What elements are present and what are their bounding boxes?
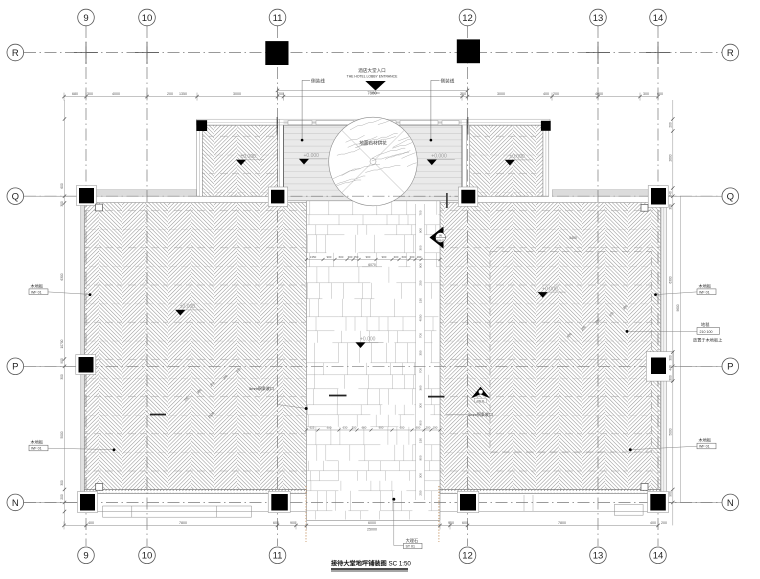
svg-text:5000: 5000: [60, 431, 64, 438]
svg-text:12: 12: [462, 551, 473, 562]
svg-text:440: 440: [669, 365, 673, 371]
svg-text:200: 200: [669, 122, 673, 128]
svg-text:4000: 4000: [595, 92, 603, 96]
svg-text:7800: 7800: [558, 521, 566, 525]
svg-text:900: 900: [290, 521, 296, 525]
svg-text:N: N: [12, 498, 19, 509]
svg-text:P: P: [727, 362, 733, 373]
svg-text:WF 01: WF 01: [699, 445, 710, 449]
svg-text:600: 600: [362, 425, 367, 429]
svg-text:200: 200: [60, 494, 64, 500]
svg-text:Q: Q: [12, 192, 19, 203]
svg-text:6000: 6000: [368, 521, 376, 525]
svg-text:350: 350: [419, 350, 423, 355]
svg-text:150: 150: [419, 298, 423, 303]
svg-text:5mm铜条收口: 5mm铜条收口: [249, 385, 274, 391]
svg-text:900: 900: [327, 255, 332, 259]
svg-text:190: 190: [417, 255, 422, 259]
svg-text:600: 600: [462, 521, 468, 525]
svg-text:210 100: 210 100: [700, 330, 713, 334]
svg-text:WF 01: WF 01: [31, 447, 42, 451]
svg-text:900: 900: [448, 521, 454, 525]
svg-text:WF 01: WF 01: [699, 290, 710, 294]
svg-text:300: 300: [87, 92, 93, 96]
svg-text:放置于木地板上: 放置于木地板上: [693, 337, 722, 344]
svg-text:WF 01: WF 01: [31, 290, 42, 294]
svg-text:600: 600: [339, 255, 344, 259]
svg-text:+0.000: +0.000: [304, 153, 320, 159]
svg-text:10: 10: [142, 13, 153, 24]
svg-text:P: P: [12, 362, 18, 373]
svg-text:300: 300: [348, 255, 353, 259]
svg-text:A09.01: A09.01: [437, 240, 445, 243]
svg-text:300: 300: [60, 374, 64, 380]
svg-text:900: 900: [327, 425, 332, 429]
svg-text:4000: 4000: [112, 92, 120, 96]
svg-text:200: 200: [426, 425, 431, 429]
svg-text:酒店大堂入口: 酒店大堂入口: [358, 67, 386, 74]
svg-text:900: 900: [366, 255, 371, 259]
svg-text:250: 250: [419, 280, 423, 285]
svg-text:900: 900: [382, 255, 387, 259]
svg-text:+0.000: +0.000: [360, 337, 376, 343]
svg-text:接待大堂地坪铺装图: 接待大堂地坪铺装图: [331, 560, 387, 568]
svg-text:地面石材拼花: 地面石材拼花: [359, 140, 387, 147]
svg-text:13: 13: [593, 13, 604, 24]
svg-text:200: 200: [553, 92, 559, 96]
svg-text:14: 14: [653, 551, 664, 562]
svg-text:地毯: 地毯: [701, 321, 710, 327]
svg-text:A09.01: A09.01: [476, 399, 485, 403]
svg-text:400: 400: [650, 521, 656, 525]
svg-text:R: R: [12, 48, 19, 59]
svg-text:R: R: [727, 48, 734, 59]
svg-text:13: 13: [593, 551, 604, 562]
svg-text:5000: 5000: [669, 428, 673, 435]
svg-text:200: 200: [278, 92, 284, 96]
svg-text:+0.000: +0.000: [431, 154, 447, 160]
svg-text:200: 200: [167, 92, 173, 96]
svg-text:680: 680: [72, 92, 78, 96]
svg-text:300: 300: [394, 255, 399, 259]
svg-text:300: 300: [669, 204, 673, 210]
svg-text:300: 300: [60, 480, 64, 486]
svg-text:900: 900: [419, 228, 423, 233]
svg-text:N: N: [727, 498, 734, 509]
svg-text:25000: 25000: [367, 527, 377, 531]
svg-text:600: 600: [402, 255, 407, 259]
svg-text:300: 300: [410, 255, 415, 259]
svg-text:ST 01: ST 01: [406, 545, 416, 549]
svg-text:600: 600: [60, 183, 64, 189]
svg-text:300: 300: [419, 403, 423, 408]
svg-text:300: 300: [419, 245, 423, 250]
svg-text:+0.000: +0.000: [542, 286, 558, 292]
svg-text:THE HOTEL LOBBY ENTRANCE: THE HOTEL LOBBY ENTRANCE: [347, 75, 398, 79]
svg-text:±0.000: ±0.000: [180, 304, 195, 310]
svg-text:±0.000: ±0.000: [241, 154, 256, 160]
svg-text:400: 400: [543, 92, 549, 96]
svg-text:W: W: [439, 234, 442, 238]
svg-text:700: 700: [419, 333, 423, 338]
svg-text:250: 250: [354, 255, 359, 259]
svg-text:木地板: 木地板: [31, 439, 44, 446]
svg-text:190: 190: [433, 425, 438, 429]
svg-text:360: 360: [419, 385, 423, 390]
svg-text:侧装线: 侧装线: [441, 78, 455, 85]
svg-text:10700: 10700: [60, 339, 64, 348]
svg-text:25000: 25000: [371, 91, 380, 95]
svg-text:6300: 6300: [669, 276, 673, 283]
svg-text:4050: 4050: [419, 314, 423, 321]
svg-text:300: 300: [352, 425, 357, 429]
svg-text:6300: 6300: [60, 273, 64, 280]
svg-text:大理石: 大理石: [406, 537, 419, 544]
svg-text:600: 600: [416, 425, 421, 429]
svg-text:11: 11: [273, 13, 283, 24]
svg-text:300: 300: [60, 201, 64, 207]
svg-text:625: 625: [310, 425, 315, 429]
svg-text:150: 150: [419, 438, 423, 443]
svg-text:900: 900: [419, 263, 423, 268]
svg-text:640: 640: [669, 191, 673, 197]
svg-text:900: 900: [60, 358, 64, 364]
svg-text:木地板: 木地板: [699, 282, 712, 289]
svg-text:200: 200: [661, 521, 667, 525]
svg-text:11: 11: [273, 551, 283, 562]
svg-text:600: 600: [400, 425, 405, 429]
svg-text:300: 300: [419, 473, 423, 478]
svg-text:630: 630: [343, 425, 348, 429]
svg-text:木地板: 木地板: [699, 437, 712, 444]
svg-text:250: 250: [419, 490, 423, 495]
svg-text:木地板: 木地板: [31, 282, 44, 289]
svg-text:9: 9: [83, 13, 88, 24]
svg-text:3000: 3000: [233, 92, 241, 96]
svg-text:10: 10: [142, 551, 153, 562]
svg-text:9600: 9600: [676, 304, 680, 311]
svg-text:400: 400: [88, 521, 94, 525]
svg-text:2600: 2600: [669, 154, 673, 161]
svg-text:6070: 6070: [368, 263, 376, 267]
svg-text:300: 300: [669, 355, 673, 361]
svg-text:3000: 3000: [497, 92, 505, 96]
svg-text:Q: Q: [727, 192, 734, 203]
svg-text:300: 300: [643, 92, 649, 96]
svg-text:200: 200: [460, 92, 466, 96]
svg-text:900: 900: [669, 491, 673, 497]
svg-text:14: 14: [653, 13, 664, 24]
svg-text:700: 700: [419, 210, 423, 215]
svg-text:900: 900: [419, 455, 423, 460]
svg-text:侧装线: 侧装线: [311, 78, 325, 85]
svg-text:900: 900: [379, 425, 384, 429]
svg-text:1350: 1350: [179, 92, 187, 96]
svg-text:300: 300: [669, 375, 673, 381]
svg-text:SC 1:50: SC 1:50: [389, 561, 412, 568]
svg-text:700: 700: [419, 368, 423, 373]
svg-text:5mm铜条收口: 5mm铜条收口: [468, 411, 493, 417]
svg-text:±0.000: ±0.000: [509, 154, 524, 160]
svg-text:1350: 1350: [310, 255, 317, 259]
svg-text:600: 600: [273, 521, 279, 525]
svg-text:12: 12: [462, 13, 473, 24]
svg-text:7800: 7800: [179, 521, 187, 525]
svg-text:9: 9: [83, 551, 88, 562]
svg-text:5400: 5400: [569, 236, 577, 240]
